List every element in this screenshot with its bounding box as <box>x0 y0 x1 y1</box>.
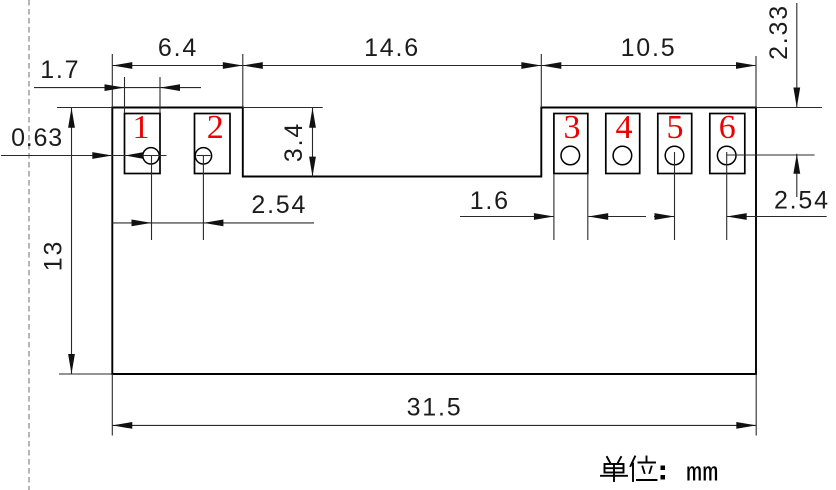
svg-text:2.54: 2.54 <box>251 191 307 219</box>
svg-text:2.33: 2.33 <box>765 4 793 60</box>
svg-text:14.6: 14.6 <box>364 34 420 62</box>
svg-text:2: 2 <box>207 109 224 146</box>
svg-text:1.7: 1.7 <box>40 56 80 84</box>
svg-text:3: 3 <box>564 109 581 146</box>
svg-text:31.5: 31.5 <box>407 394 463 422</box>
svg-text:mm: mm <box>686 460 718 490</box>
svg-text:4: 4 <box>616 109 633 146</box>
svg-text:6: 6 <box>719 109 736 146</box>
svg-text:6.4: 6.4 <box>158 34 198 62</box>
svg-text:5: 5 <box>667 109 684 146</box>
svg-text:0.63: 0.63 <box>11 124 63 152</box>
svg-text:2.54: 2.54 <box>774 187 830 215</box>
svg-text:1: 1 <box>133 109 150 146</box>
svg-text:10.5: 10.5 <box>621 34 677 62</box>
svg-text:1.6: 1.6 <box>470 187 510 215</box>
svg-text:13: 13 <box>40 240 68 271</box>
svg-text:3.4: 3.4 <box>280 122 308 162</box>
